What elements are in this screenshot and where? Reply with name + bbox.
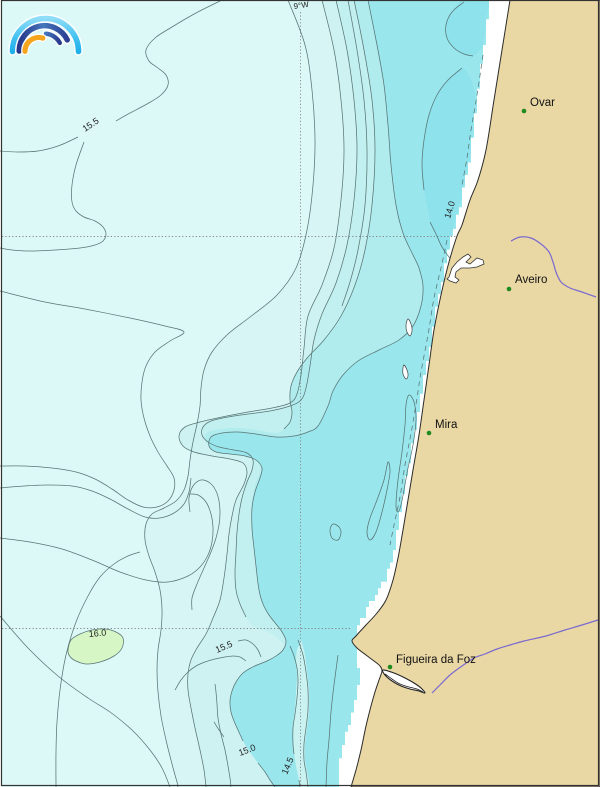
svg-text:Figueira da Foz: Figueira da Foz (396, 654, 476, 666)
svg-text:Mira: Mira (435, 419, 458, 431)
svg-text:Aveiro: Aveiro (515, 274, 547, 286)
svg-text:Ovar: Ovar (530, 97, 555, 109)
svg-text:16.0: 16.0 (88, 628, 106, 639)
